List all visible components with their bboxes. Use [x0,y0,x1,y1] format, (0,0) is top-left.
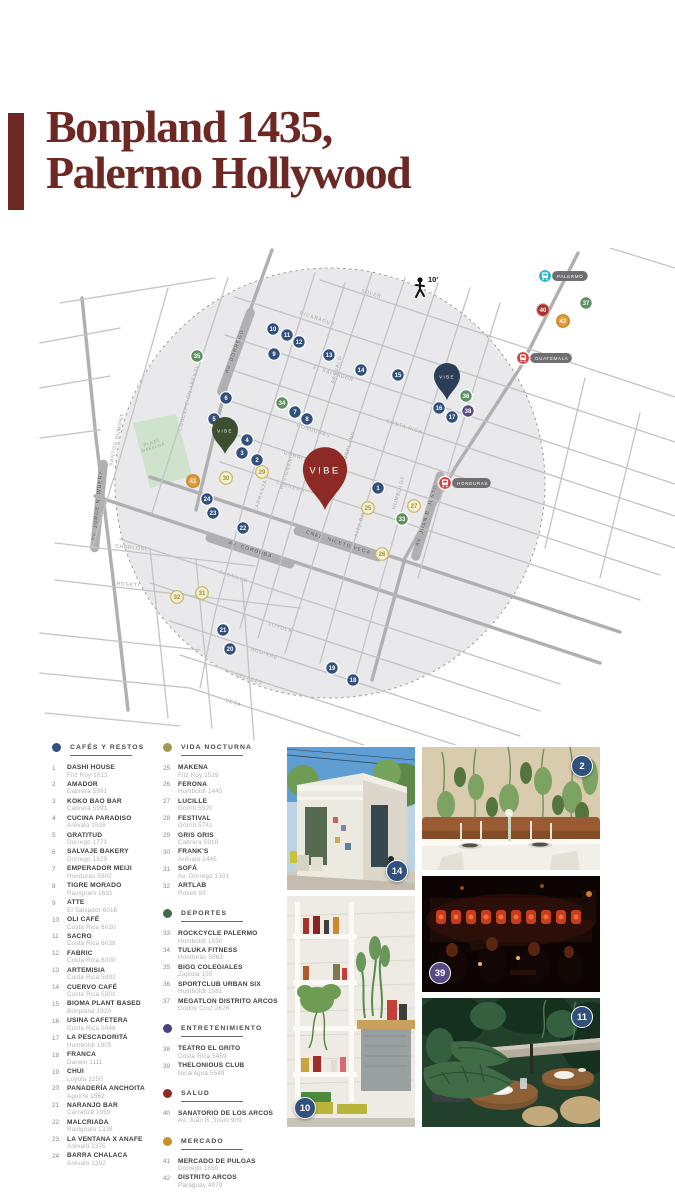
category-rule [181,921,243,922]
map-marker-22[interactable]: 22 [237,522,250,535]
legend-item-40[interactable]: 40SANATORIO DE LOS ARCOSAv. Juan B. Just… [163,1110,285,1125]
poi-name: MALCRIADA [67,1119,113,1127]
map-marker-3[interactable]: 3 [236,447,249,460]
poi-address: Costa Rica 6000 [67,957,116,964]
marker-number: 36 [463,394,470,400]
legend-item-20[interactable]: 20PANADERÍA ANCHOITAAguirre 1562 [52,1085,162,1100]
poi-name: BIOMA PLANT BASED [67,1000,141,1008]
marker-number: 30 [223,476,230,482]
map-marker-15[interactable]: 15 [392,369,405,382]
category-label: ENTRETENIMIENTO [181,1025,262,1032]
poi-address: Costa Rica 5893 [67,974,116,981]
poi-number: 19 [52,1068,67,1083]
marker-number: 40 [540,308,547,314]
poi-name: TULUKA FITNESS [178,947,237,955]
legend-item-4[interactable]: 4CUCINA PARADISOArévalo 1538 [52,815,162,830]
map-marker-21[interactable]: 21 [217,624,230,637]
street-unnamed [40,673,190,688]
poi-address: El Salvador 6016 [67,907,117,914]
poi-address: Av. Dorrego 1301 [178,873,229,880]
category-rule [181,1149,243,1150]
legend-item-14[interactable]: 14CUERVO CAFÉCosta Rica 5801 [52,984,162,999]
map-marker-6[interactable]: 6 [220,392,233,405]
poi-number: 39 [163,1062,178,1077]
category-rule [181,1036,243,1037]
legend-item-37[interactable]: 37MEGATLON DISTRITO ARCOSGodoy Cruz 2626 [163,998,285,1013]
poi-name: AMADOR [67,781,107,789]
poi-number: 9 [52,899,67,914]
poi-address: Arévalo 1538 [67,822,132,829]
poi-name: DISTRITO ARCOS [178,1174,237,1182]
map-marker-24[interactable]: 24 [201,493,214,506]
station-name: HONDURAS [457,481,488,486]
legend-item-33[interactable]: 33ROCKCYCLE PALERMOHumboldt 1550 [163,930,285,945]
map-marker-34[interactable]: 34 [276,397,289,410]
entretenimiento-category-dot [163,1024,172,1033]
legend-item-13[interactable]: 13ARTEMISIACosta Rica 5893 [52,967,162,982]
poi-name: DASHI HOUSE [67,764,115,772]
pin-label: VIBE [439,375,455,380]
poi-address: Arévalo 1445 [178,856,217,863]
poi-name: SACRO [67,933,116,941]
street-unnamed [545,378,585,548]
poi-name: LA PESCADORITA [67,1034,128,1042]
legend-item-7[interactable]: 7EMPERADOR MEIJIHonduras 5902 [52,865,162,880]
poi-name: SALVAJE BAKERY [67,848,129,856]
poi-number: 27 [163,798,178,813]
poi-number: 4 [52,815,67,830]
poi-address: Humboldt 1981 [178,988,261,995]
legend-item-38[interactable]: 38TEATRO EL GRITOCosta Rica 5459 [163,1045,285,1060]
marker-number: 20 [227,647,234,653]
map-marker-30[interactable]: 30 [220,472,233,485]
poi-address: Bonpland 1920 [67,1008,141,1015]
poi-address: Arévalo 1392 [67,1160,128,1167]
legend-item-30[interactable]: 30FRANK'SArévalo 1445 [163,848,285,863]
walk-time-label: 10' [428,275,438,284]
poi-number: 40 [163,1110,178,1125]
poi-name: SPORTCLUB URBAN SIX [178,981,261,989]
category-label: SALUD [181,1090,210,1097]
poi-number: 33 [163,930,178,945]
poi-name: BIGG COLEGIALES [178,964,243,972]
poi-name: NARANJO BAR [67,1102,118,1110]
legend-item-36[interactable]: 36SPORTCLUB URBAN SIXHumboldt 1981 [163,981,285,996]
marker-number: 19 [329,666,336,672]
marker-number: 42 [560,319,567,325]
poi-address: Dorrego 1829 [67,856,129,863]
poi-number: 13 [52,967,67,982]
poi-name: FRANK'S [178,848,217,856]
poi-name: SANATORIO DE LOS ARCOS [178,1110,273,1118]
map-marker-37[interactable]: 37 [580,297,593,310]
legend-item-27[interactable]: 27LUCILLEGorriti 5520 [163,798,285,813]
legend-item-31[interactable]: 31SOFÁAv. Dorrego 1301 [163,865,285,880]
pin-label: VIBE [217,429,233,434]
poi-name: LUCILLE [178,798,213,806]
marker-number: 15 [395,373,402,379]
map-marker-1[interactable]: 1 [372,482,385,495]
poi-number: 32 [163,882,178,897]
map-marker-19[interactable]: 19 [326,662,339,675]
marker-number: 33 [399,517,406,523]
poi-address: Nicaragua 5549 [178,1070,244,1077]
page-title: Bonpland 1435,Palermo Hollywood [46,104,410,196]
poi-name: PANADERÍA ANCHOITA [67,1085,145,1093]
street-unnamed [40,328,120,343]
marker-number: 27 [411,504,418,510]
marker-number: 25 [365,506,372,512]
poi-address: Fitz Roy 1519 [178,772,219,779]
poi-name: ARTEMISIA [67,967,116,975]
poi-number: 2 [52,781,67,796]
station-honduras[interactable]: HONDURAS [438,476,490,489]
legend-category-mercado: MERCADO41MERCADO DE PULGASDorrego 165042… [163,1137,285,1190]
marker-number: 13 [326,353,333,359]
legend-column-1: CAFÉS Y RESTOS1DASHI HOUSEFitz Roy 16132… [52,743,162,1179]
poi-address: Gorriti 5520 [178,805,213,812]
mercado-category-dot [163,1137,172,1146]
legend-category-cafes: CAFÉS Y RESTOS1DASHI HOUSEFitz Roy 16132… [52,743,162,1167]
map-marker-40[interactable]: 40 [537,304,550,317]
deportes-category-dot [163,909,172,918]
marker-number: 23 [210,511,217,517]
legend-item-5[interactable]: 5GRATITUDDorrego 1771 [52,832,162,847]
street-unnamed [40,376,110,388]
map-marker-10[interactable]: 10 [267,323,280,336]
marker-number: 24 [204,497,211,503]
marker-number: 35 [194,354,201,360]
marker-number: 12 [296,340,303,346]
legend-item-41[interactable]: 41MERCADO DE PULGASDorrego 1650 [163,1158,285,1173]
map-marker-25[interactable]: 25 [362,502,375,515]
poi-number: 3 [52,798,67,813]
map-marker-16[interactable]: 16 [433,402,446,415]
poi-name: CHUI [67,1068,103,1076]
poi-number: 24 [52,1152,67,1167]
poi-name: FESTIVAL [178,815,213,823]
street-unnamed [45,713,180,726]
poi-number: 1 [52,764,67,779]
legend-category-deportes: DEPORTES33ROCKCYCLE PALERMOHumboldt 1550… [163,909,285,1012]
category-rule [70,755,132,756]
poi-address: Av. Juan B. Justo 909 [178,1117,273,1124]
poi-name: THELONIOUS CLUB [178,1062,244,1070]
marker-number: 11 [284,333,291,339]
poi-address: Loyola 1250 [67,1076,103,1083]
photo-badge-2: 2 [571,755,593,777]
legend-category-nocturna: VIDA NOCTURNA25MAKENAFitz Roy 151926FERO… [163,743,285,897]
legend-item-6[interactable]: 6SALVAJE BAKERYDorrego 1829 [52,848,162,863]
poi-address: Costa Rica 5801 [67,991,117,998]
legend-item-19[interactable]: 19CHUILoyola 1250 [52,1068,162,1083]
poi-name: MERCADO DE PULGAS [178,1158,256,1166]
poi-address: Humboldt 1550 [178,938,257,945]
legend-item-8[interactable]: 8TIGRE MORADORavignani 1691 [52,882,162,897]
poi-name: BARRA CHALACA [67,1152,128,1160]
poi-name: KOKO BAO BAR [67,798,122,806]
station-name: PALERMO [557,274,583,279]
poi-address: Roseti 93 [178,890,206,897]
poi-name: MEGATLON DISTRITO ARCOS [178,998,278,1006]
poi-address: Arévalo 1375 [67,1143,143,1150]
poi-name: LA VENTANA X ANAFE [67,1136,143,1144]
map-marker-29[interactable]: 29 [256,466,269,479]
poi-number: 10 [52,916,67,931]
poi-number: 26 [163,781,178,796]
legend-item-26[interactable]: 26FERONAHumboldt 1445 [163,781,285,796]
poi-name: USINA CAFETERA [67,1017,128,1025]
map-marker-23[interactable]: 23 [207,507,220,520]
map-marker-38[interactable]: 38 [462,405,475,418]
poi-name: CUERVO CAFÉ [67,984,117,992]
poi-address: Aguirre 1562 [67,1093,145,1100]
poi-number: 18 [52,1051,67,1066]
poi-number: 36 [163,981,178,996]
poi-address: Humboldt 1905 [67,1042,128,1049]
map-marker-18[interactable]: 18 [347,674,360,687]
marker-number: 14 [358,368,365,374]
legend-item-34[interactable]: 34TULUKA FITNESSHonduras 5963 [163,947,285,962]
poi-address: Cabrera 5918 [178,839,218,846]
poi-address: Cabrera 5991 [67,788,107,795]
legend-item-35[interactable]: 35BIGG COLEGIALESZapiola 155 [163,964,285,979]
poi-name: FRANCA [67,1051,103,1059]
poi-address: Carranza 1059 [67,1109,118,1116]
street-unnamed [60,278,215,303]
map-marker-4[interactable]: 4 [241,434,254,447]
legend-item-15[interactable]: 15BIOMA PLANT BASEDBonpland 1920 [52,1000,162,1015]
cafes-category-dot [52,743,61,752]
legend-item-12[interactable]: 12FABRICCosta Rica 6000 [52,950,162,965]
poi-number: 28 [163,815,178,830]
street-unnamed [600,413,640,578]
marker-number: 38 [465,409,472,415]
legend-item-29[interactable]: 29GRIS GRISCabrera 5918 [163,832,285,847]
legend-item-39[interactable]: 39THELONIOUS CLUBNicaragua 5549 [163,1062,285,1077]
map-marker-33[interactable]: 33 [396,513,409,526]
map-marker-9[interactable]: 9 [268,348,281,361]
title-line1: Bonpland 1435, [46,101,332,152]
poi-number: 11 [52,933,67,948]
poi-address: Dorrego 1771 [67,839,107,846]
poi-address: Honduras 5963 [178,954,237,961]
poi-number: 37 [163,998,178,1013]
poi-number: 29 [163,832,178,847]
poi-address: Gorriti 5741 [178,822,213,829]
poi-name: EMPERADOR MEIJI [67,865,132,873]
legend-column-2: VIDA NOCTURNA25MAKENAFitz Roy 151926FERO… [163,743,285,1201]
poi-number: 20 [52,1085,67,1100]
legend-item-17[interactable]: 17LA PESCADORITAHumboldt 1905 [52,1034,162,1049]
marker-number: 21 [220,628,227,634]
map-marker-36[interactable]: 36 [460,390,473,403]
title-line2: Palermo Hollywood [46,147,410,198]
poi-number: 14 [52,984,67,999]
category-label: VIDA NOCTURNA [181,744,252,751]
legend-item-42[interactable]: 42DISTRITO ARCOSParaguay 4979 [163,1174,285,1189]
poi-name: OLI CAFÉ [67,916,116,924]
salud-category-dot [163,1089,172,1098]
poi-address: Paraguay 4979 [178,1182,237,1189]
poi-number: 6 [52,848,67,863]
poi-number: 22 [52,1119,67,1134]
marker-number: 18 [350,678,357,684]
category-rule [181,755,243,756]
poi-name: TEATRO EL GRITO [178,1045,240,1053]
category-label: CAFÉS Y RESTOS [70,744,144,751]
poi-name: GRIS GRIS [178,832,218,840]
poi-address: Cabrera 5991 [67,805,122,812]
map-marker-27[interactable]: 27 [408,500,421,513]
poi-name: MAKENA [178,764,219,772]
poi-address: Costa Rica 5459 [178,1053,240,1060]
legend-category-salud: SALUD40SANATORIO DE LOS ARCOSAv. Juan B.… [163,1089,285,1125]
photo-badge-14: 14 [386,860,408,882]
poi-address: Honduras 5902 [67,873,132,880]
poi-number: 21 [52,1102,67,1117]
poi-number: 16 [52,1017,67,1032]
marker-number: 32 [174,595,181,601]
map-marker-8[interactable]: 8 [301,413,314,426]
poi-name: FERONA [178,781,223,789]
marker-number: 41 [190,479,197,485]
photo-corner-cafe: 14 [287,747,415,890]
map-marker-13[interactable]: 13 [323,349,336,362]
photo-badge-11: 11 [571,1006,593,1028]
poi-address: Costa Rica 6020 [67,924,116,931]
marker-number: 34 [279,401,286,407]
map-marker-26[interactable]: 26 [376,548,389,561]
poi-number: 30 [163,848,178,863]
legend-category-entretenimiento: ENTRETENIMIENTO38TEATRO EL GRITOCosta Ri… [163,1024,285,1077]
poi-address: Darwin 1111 [67,1059,103,1066]
poi-name: ROCKCYCLE PALERMO [178,930,257,938]
poi-address: Zapiola 155 [178,971,243,978]
map-marker-41[interactable]: 41 [187,475,200,488]
poi-number: 31 [163,865,178,880]
poi-number: 34 [163,947,178,962]
legend-item-10[interactable]: 10OLI CAFÉCosta Rica 6020 [52,916,162,931]
map-marker-7[interactable]: 7 [289,406,302,419]
photo-badge-39: 39 [429,962,451,984]
pin-label: VIBE [309,465,340,476]
legend-item-23[interactable]: 23LA VENTANA X ANAFEArévalo 1375 [52,1136,162,1151]
street-unnamed [40,430,100,438]
legend-item-9[interactable]: 9ATTEEl Salvador 6016 [52,899,162,914]
poi-number: 12 [52,950,67,965]
photo-garden-restaurant: 2 [422,747,600,870]
legend-item-11[interactable]: 11SACROCosta Rica 6038 [52,933,162,948]
poi-number: 38 [163,1045,178,1060]
poi-address: Humboldt 1445 [178,788,223,795]
poi-number: 5 [52,832,67,847]
poi-name: ARTLAB [178,882,206,890]
category-label: DEPORTES [181,910,227,917]
map-marker-20[interactable]: 20 [224,643,237,656]
category-label: MERCADO [181,1138,224,1145]
poi-number: 35 [163,964,178,979]
poi-address: Costa Rica 6038 [67,940,116,947]
poi-number: 25 [163,764,178,779]
map-marker-32[interactable]: 32 [171,591,184,604]
legend-item-24[interactable]: 24BARRA CHALACAArévalo 1392 [52,1152,162,1167]
poi-number: 8 [52,882,67,897]
legend-item-25[interactable]: 25MAKENAFitz Roy 1519 [163,764,285,779]
station-guatemala[interactable]: GUATEMALA [516,351,572,364]
photo-plant-shop: 10 [287,896,415,1127]
legend-item-1[interactable]: 1DASHI HOUSEFitz Roy 1613 [52,764,162,779]
marker-number: 16 [436,406,443,412]
legend-item-16[interactable]: 16USINA CAFETERACosta Rica 5946 [52,1017,162,1032]
photo-badge-10: 10 [294,1097,316,1119]
map-marker-42[interactable]: 42 [557,315,570,328]
map-marker-31[interactable]: 31 [196,587,209,600]
marker-number: 37 [583,301,590,307]
legend-item-21[interactable]: 21NARANJO BARCarranza 1059 [52,1102,162,1117]
poi-name: CUCINA PARADISO [67,815,132,823]
marker-number: 22 [240,526,247,532]
category-rule [181,1101,243,1102]
poi-number: 42 [163,1174,178,1189]
poi-name: ATTE [67,899,117,907]
map-marker-2[interactable]: 2 [251,454,264,467]
poi-name: TIGRE MORADO [67,882,121,890]
marker-number: 29 [259,470,266,476]
poi-name: FABRIC [67,950,116,958]
map-marker-17[interactable]: 17 [446,411,459,424]
poi-number: 15 [52,1000,67,1015]
legend-item-3[interactable]: 3KOKO BAO BARCabrera 5991 [52,798,162,813]
accent-bar [8,113,24,210]
legend-item-22[interactable]: 22MALCRIADARavignani 1338 [52,1119,162,1134]
station-name: GUATEMALA [535,356,569,361]
poi-number: 17 [52,1034,67,1049]
station-palermo[interactable]: PALERMO [538,269,587,282]
street-label: VERA [224,698,242,709]
photo-jazz-club: 39 [422,876,600,992]
map-marker-14[interactable]: 14 [355,364,368,377]
poi-name: SOFÁ [178,865,229,873]
poi-number: 23 [52,1136,67,1151]
poi-number: 7 [52,865,67,880]
legend-item-28[interactable]: 28FESTIVALGorriti 5741 [163,815,285,830]
map-marker-35[interactable]: 35 [191,350,204,363]
poi-name: GRATITUD [67,832,107,840]
marker-number: 26 [379,552,386,558]
neighborhood-map[interactable]: PLAZAMAFALDAAV. JORGE NEWBERYAV. DORREGO… [0,248,675,745]
poi-number: 41 [163,1158,178,1173]
photo-patio-restaurant: 11 [422,998,600,1127]
nocturna-category-dot [163,743,172,752]
poi-address: Ravignani 1691 [67,890,121,897]
map-marker-12[interactable]: 12 [293,336,306,349]
poi-address: Godoy Cruz 2626 [178,1005,278,1012]
street-unnamed [610,248,675,268]
poi-address: Fitz Roy 1613 [67,772,115,779]
poi-address: Ravignani 1338 [67,1126,113,1133]
legend-item-32[interactable]: 32ARTLABRoseti 93 [163,882,285,897]
legend-item-18[interactable]: 18FRANCADarwin 1111 [52,1051,162,1066]
plant-shop-illustration [287,896,415,1127]
marker-number: 17 [449,415,456,421]
map-marker-11[interactable]: 11 [281,329,294,342]
poi-address: Dorrego 1650 [178,1165,256,1172]
marker-number: 10 [270,327,277,333]
marker-number: 31 [199,591,206,597]
poi-address: Costa Rica 5946 [67,1025,128,1032]
legend-item-2[interactable]: 2AMADORCabrera 5991 [52,781,162,796]
